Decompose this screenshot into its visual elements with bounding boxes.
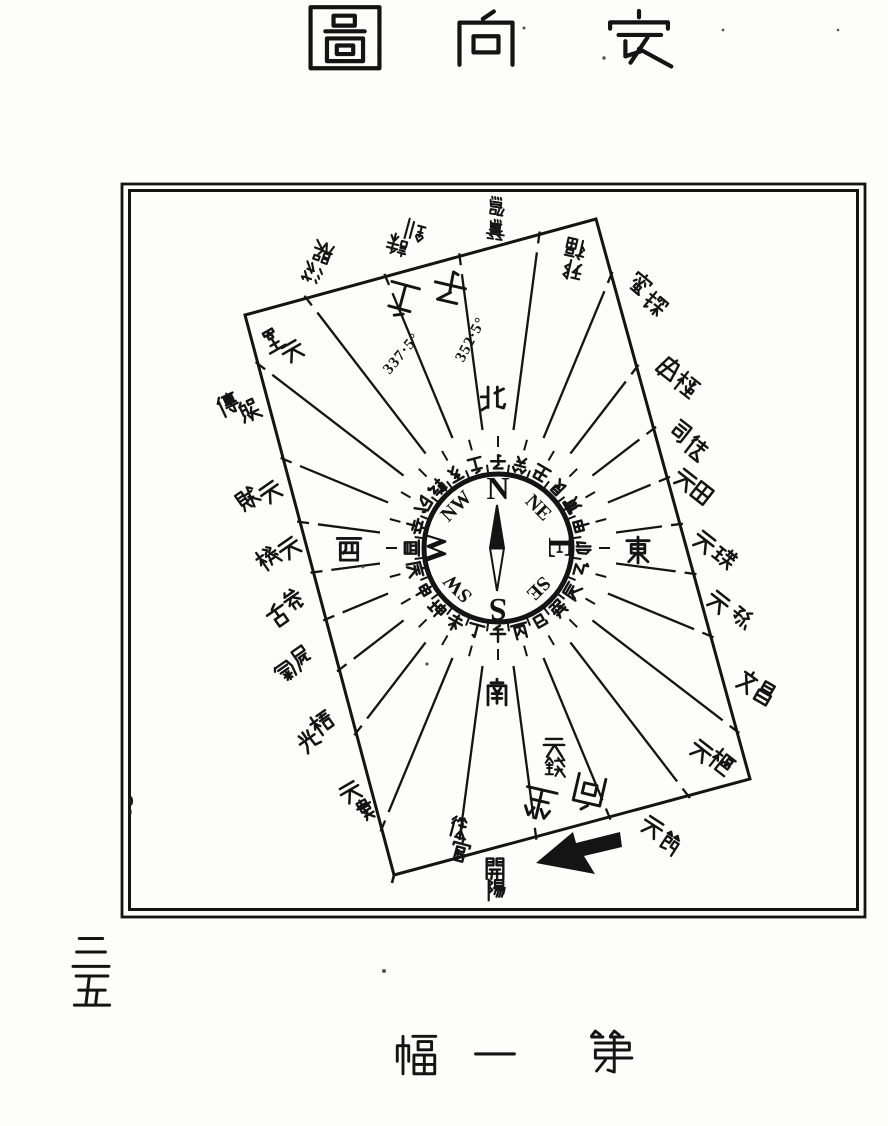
svg-text:S: S <box>489 592 507 628</box>
svg-text:W: W <box>417 532 453 564</box>
svg-text:N: N <box>486 470 509 506</box>
svg-text:352·5°: 352·5° <box>452 314 490 365</box>
svg-text:E: E <box>542 537 578 558</box>
